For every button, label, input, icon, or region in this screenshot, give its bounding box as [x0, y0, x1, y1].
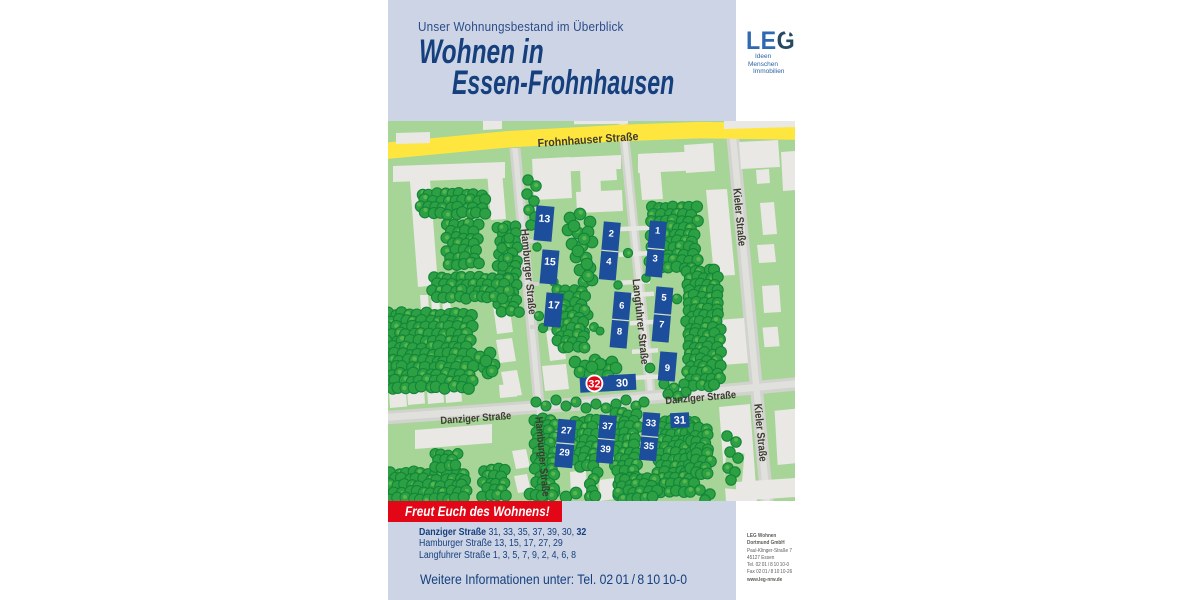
svg-text:27: 27	[561, 425, 572, 437]
svg-text:6: 6	[619, 300, 625, 311]
svg-text:39: 39	[600, 444, 611, 456]
svg-text:32: 32	[588, 379, 600, 391]
svg-text:35: 35	[643, 441, 655, 453]
svg-text:13: 13	[538, 213, 551, 226]
svg-text:30: 30	[616, 377, 629, 390]
svg-text:9: 9	[664, 363, 670, 374]
svg-text:17: 17	[548, 299, 561, 312]
svg-text:8: 8	[616, 326, 622, 337]
svg-text:33: 33	[645, 418, 656, 430]
svg-text:15: 15	[544, 256, 557, 269]
svg-text:2: 2	[608, 228, 614, 239]
svg-text:29: 29	[559, 447, 570, 459]
svg-text:37: 37	[602, 421, 613, 433]
svg-text:7: 7	[658, 319, 664, 330]
svg-text:31: 31	[673, 414, 686, 427]
svg-text:3: 3	[652, 253, 658, 264]
